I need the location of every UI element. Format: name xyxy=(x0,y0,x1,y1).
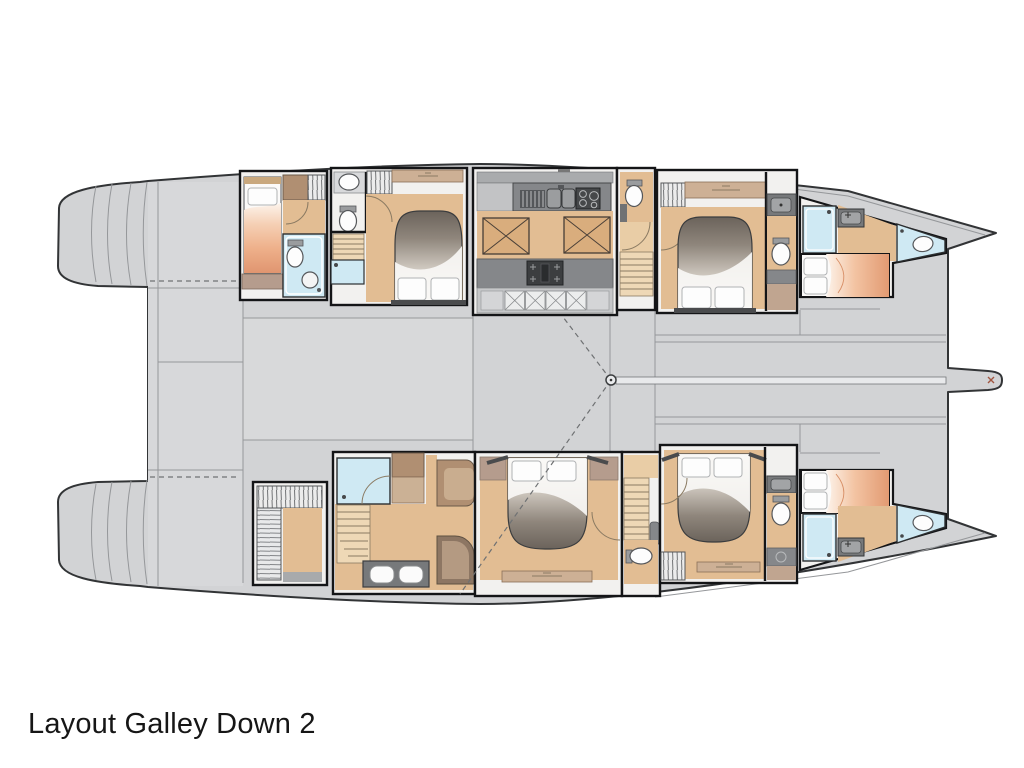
port-mid-aft-cabin xyxy=(331,168,467,305)
hanging-locker xyxy=(661,552,685,580)
shower-head xyxy=(342,495,346,499)
foot-locker xyxy=(767,566,796,580)
sink-left xyxy=(547,189,561,208)
pillow xyxy=(715,287,744,308)
toilet-tank xyxy=(773,496,789,502)
vent xyxy=(558,169,570,172)
foot-locker xyxy=(242,274,283,289)
washbasin xyxy=(841,212,861,224)
cabinet xyxy=(392,453,424,477)
desk-top xyxy=(444,468,474,500)
starboard-mid-cabin xyxy=(660,445,797,583)
washbasin xyxy=(302,272,318,288)
galley xyxy=(473,168,617,315)
shower-tray xyxy=(767,548,796,566)
blanket xyxy=(244,203,281,273)
cabinet xyxy=(620,204,627,222)
port-forward-cabin xyxy=(657,170,797,313)
sink-right xyxy=(562,189,575,208)
shelving xyxy=(257,508,281,580)
toilet-tank xyxy=(288,240,303,246)
cabinet xyxy=(767,270,796,284)
mast-step-dot xyxy=(610,379,613,382)
hanging-locker xyxy=(257,486,322,508)
washbasin xyxy=(339,174,359,190)
toilet xyxy=(772,503,790,525)
toilet xyxy=(287,247,303,267)
locker-base xyxy=(283,572,322,582)
starboard-aft-wardrobe xyxy=(253,482,327,585)
toilet xyxy=(340,211,357,232)
pillow xyxy=(398,278,426,300)
cabinet xyxy=(283,175,308,200)
toilet xyxy=(626,186,643,207)
pillow xyxy=(804,473,827,490)
hanging-locker xyxy=(661,183,685,207)
cabin-floor xyxy=(283,200,325,234)
foredeck-centerline xyxy=(616,377,946,384)
hanging-locker xyxy=(308,175,325,200)
foot-locker xyxy=(767,284,796,310)
owner-bathroom xyxy=(333,452,475,594)
cockpit-deck xyxy=(148,182,243,586)
staircase xyxy=(333,234,364,260)
blanket xyxy=(826,254,889,297)
toilet xyxy=(630,548,652,564)
seat-cushion xyxy=(442,541,469,579)
shower-head xyxy=(334,263,338,267)
locker-panel xyxy=(481,291,503,310)
shower-head xyxy=(827,210,831,214)
headboard xyxy=(391,300,466,305)
vanity-sink xyxy=(399,566,423,583)
landing-floor xyxy=(620,222,653,252)
galley-back-band xyxy=(477,172,613,183)
washbasin xyxy=(771,479,791,490)
faucet xyxy=(558,185,564,189)
counter-cabinet xyxy=(477,183,513,211)
headboard xyxy=(244,177,281,184)
shower-drain xyxy=(900,534,904,538)
port-aft-cabin xyxy=(240,171,327,300)
locker-panel xyxy=(587,291,609,310)
pillow xyxy=(804,492,827,509)
staircase xyxy=(624,478,649,540)
shower-head xyxy=(827,553,831,557)
starboard-day-head-companionway xyxy=(622,452,660,596)
pillow xyxy=(714,458,742,477)
washbasin xyxy=(841,541,861,553)
pillow xyxy=(512,461,541,481)
pillow xyxy=(682,458,710,477)
landing-floor xyxy=(624,455,658,478)
basin-drain xyxy=(780,204,783,207)
shower-drain xyxy=(317,288,321,292)
pillow xyxy=(804,277,827,294)
drainer xyxy=(520,190,545,208)
owner-cabin xyxy=(475,452,622,596)
wardrobe-floor xyxy=(283,508,322,572)
floor-plan-canvas: Layout Galley Down 2 xyxy=(0,0,1024,768)
shower-room xyxy=(803,514,836,561)
headboard xyxy=(674,308,756,313)
port-day-head-companionway xyxy=(617,168,655,310)
vanity-sink xyxy=(370,566,394,583)
pillow xyxy=(682,287,711,308)
pillow xyxy=(804,258,827,275)
hob-center xyxy=(541,264,549,282)
shower-drain xyxy=(900,229,904,233)
pillow xyxy=(248,188,277,205)
saloon-sole-panel xyxy=(243,318,473,440)
hanging-locker xyxy=(367,171,392,194)
staircase xyxy=(337,505,370,563)
corridor-floor xyxy=(426,455,437,505)
toilet xyxy=(772,243,790,265)
cabinet-low xyxy=(392,477,424,503)
shower-room xyxy=(803,206,836,253)
pillow xyxy=(431,278,459,300)
catamaran-floor-plan xyxy=(0,0,1024,768)
plan-title: Layout Galley Down 2 xyxy=(28,708,316,741)
